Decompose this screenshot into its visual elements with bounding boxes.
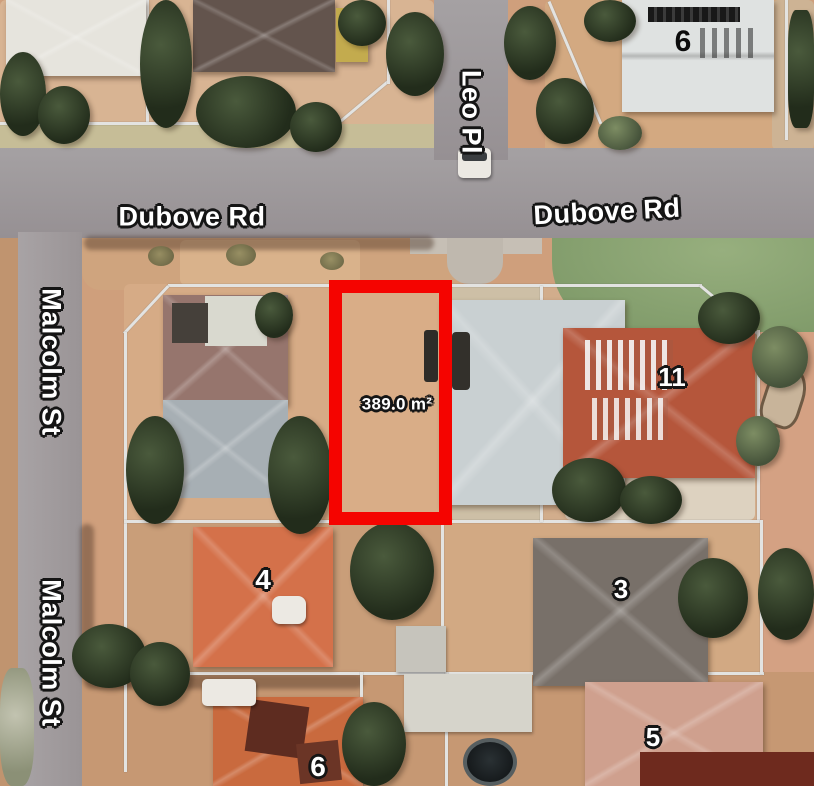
garage-gray <box>404 674 532 732</box>
tree <box>196 76 296 148</box>
tree <box>342 702 406 786</box>
van-white <box>202 679 256 706</box>
boundary-line <box>124 332 127 772</box>
tree <box>698 292 760 344</box>
tree <box>620 476 682 524</box>
road-label-malcolm-st-north: Malcolm St <box>38 288 65 436</box>
tree <box>255 292 293 338</box>
roof-vents <box>700 28 760 58</box>
road-label-leo-pl: Leo Pl <box>458 70 485 154</box>
parcel-area-label: 389.0 m² <box>362 396 432 413</box>
lot-number-11: 11 <box>658 364 686 390</box>
tree <box>140 0 192 128</box>
shrub <box>320 252 344 270</box>
tree <box>38 86 90 144</box>
road-label-dubove-rd-west: Dubove Rd <box>118 204 265 231</box>
tree <box>350 522 434 620</box>
driveway-stub <box>447 238 503 284</box>
tree <box>552 458 626 522</box>
solar-panels-white <box>592 398 668 440</box>
shrub <box>226 244 256 266</box>
tree <box>758 548 814 640</box>
tree <box>752 326 808 388</box>
tree <box>788 10 814 128</box>
tree <box>504 6 556 80</box>
tree <box>0 668 34 786</box>
solar-panels <box>648 7 740 22</box>
tree <box>268 416 332 534</box>
tree <box>338 0 386 46</box>
satellite-map-canvas[interactable]: Leo Pl Dubove Rd Dubove Rd Malcolm St Ma… <box>0 0 814 786</box>
house-roof-dark-top <box>193 0 335 72</box>
car-white <box>272 596 306 624</box>
tree <box>678 558 748 638</box>
lot-number-6-top: 6 <box>675 25 692 59</box>
chimney-dark <box>452 332 470 390</box>
road-label-malcolm-st-south: Malcolm St <box>38 579 65 727</box>
tree-shadow-road-south <box>84 236 434 250</box>
tree <box>126 416 184 524</box>
tree <box>386 12 444 96</box>
tree <box>130 642 190 706</box>
tree <box>584 0 636 42</box>
house-roof-lot4 <box>193 527 333 667</box>
shed-gray <box>396 626 446 672</box>
shrub <box>148 246 174 266</box>
lot-number-6-bottom: 6 <box>310 753 326 781</box>
lot-number-5: 5 <box>646 724 660 750</box>
pool-round <box>463 738 517 786</box>
tree <box>598 116 642 150</box>
tree <box>290 102 342 152</box>
lot-number-4: 4 <box>255 566 271 594</box>
tree <box>736 416 780 466</box>
lot-number-3: 3 <box>614 576 628 602</box>
garage-dark <box>172 303 208 343</box>
building-dark-red <box>640 752 814 786</box>
tree <box>536 78 594 144</box>
